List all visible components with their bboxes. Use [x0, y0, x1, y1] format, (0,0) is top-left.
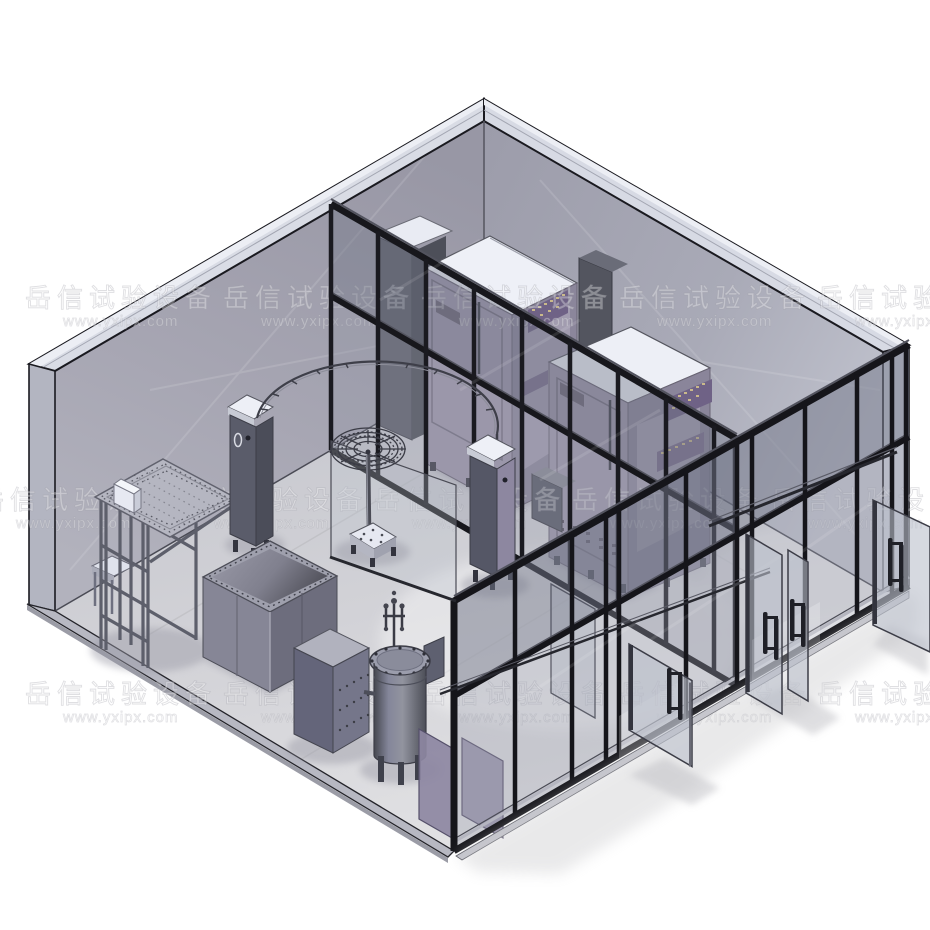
- svg-text:www.yxipx.com: www.yxipx.com: [854, 313, 930, 330]
- svg-text:岳信试验设备: 岳信试验设备: [619, 283, 811, 313]
- svg-text:岳信试验设备: 岳信试验设备: [817, 283, 930, 313]
- svg-text:www.yxipx.com: www.yxipx.com: [62, 313, 179, 330]
- svg-text:岳信试验设备: 岳信试验设备: [25, 283, 217, 313]
- svg-text:www.yxipx.com: www.yxipx.com: [15, 515, 132, 532]
- svg-text:www.yxipx.com: www.yxipx.com: [62, 709, 179, 726]
- svg-text:岳信试验设备: 岳信试验设备: [25, 679, 217, 709]
- svg-text:www.yxipx.com: www.yxipx.com: [854, 709, 930, 726]
- svg-text:www.yxipx.com: www.yxipx.com: [656, 313, 773, 330]
